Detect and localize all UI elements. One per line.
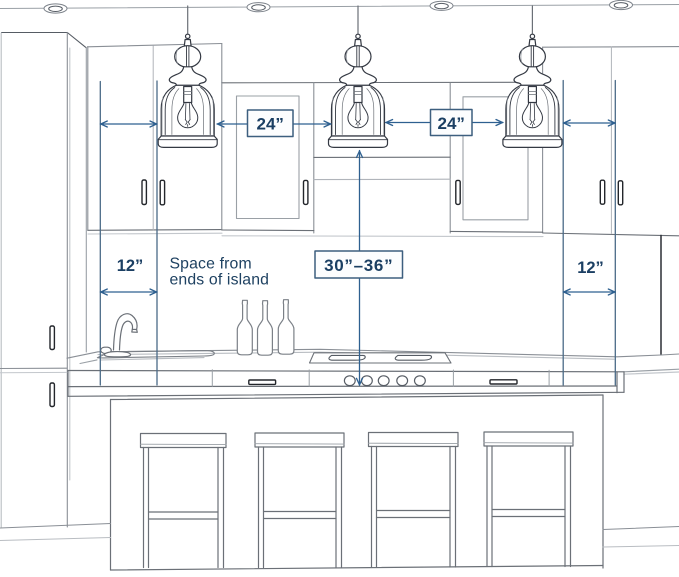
svg-text:ends of island: ends of island bbox=[170, 272, 270, 289]
svg-text:12”: 12” bbox=[117, 257, 144, 275]
svg-text:24”: 24” bbox=[437, 114, 464, 133]
svg-text:12”: 12” bbox=[577, 259, 604, 277]
svg-text:30”–36”: 30”–36” bbox=[324, 256, 393, 275]
svg-text:24”: 24” bbox=[256, 115, 283, 134]
svg-text:Space from: Space from bbox=[170, 256, 252, 273]
